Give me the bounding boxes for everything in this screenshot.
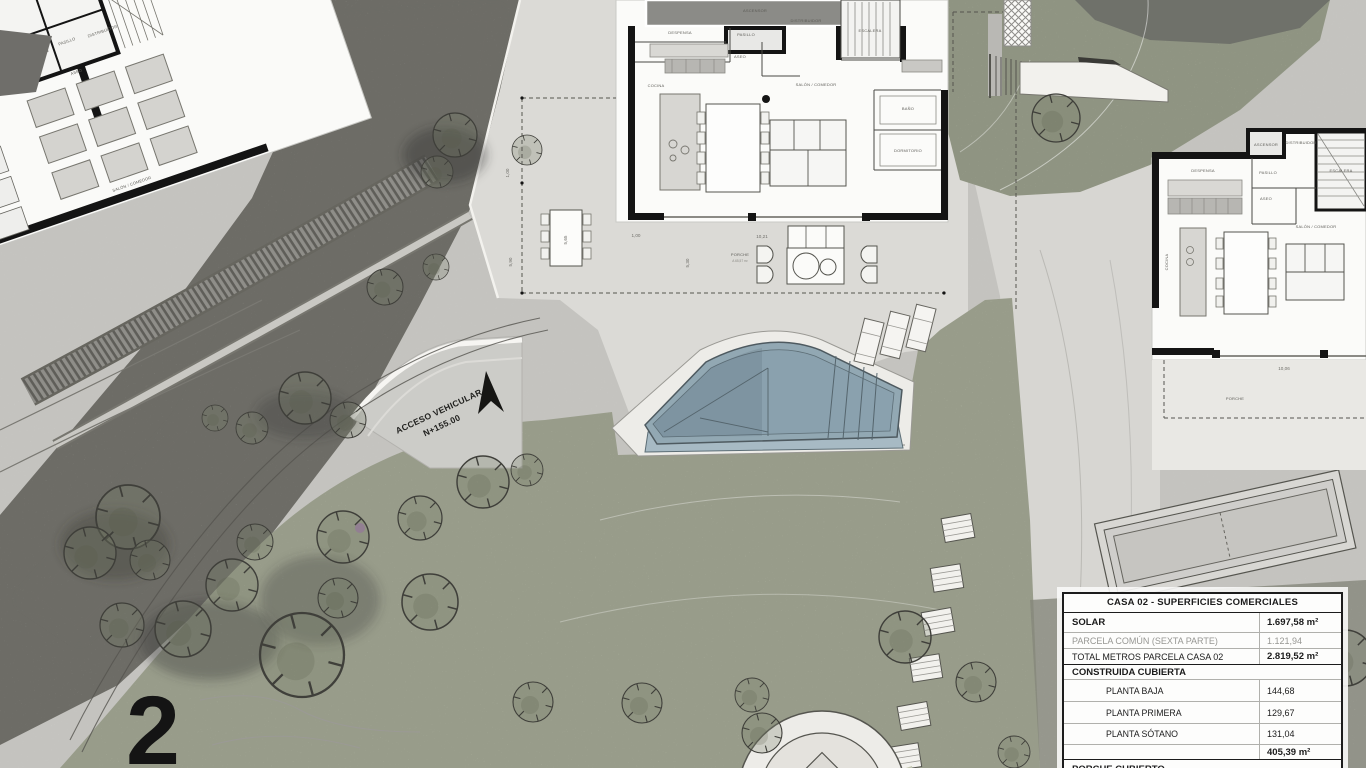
- row-value: [1260, 760, 1341, 768]
- floorplan-house-center: ASCENSOR DISTRIBUIDOR PASILLO ESCALERA D…: [616, 0, 948, 222]
- table-row-planta-primera: PLANTA PRIMERA 129,67: [1064, 702, 1341, 724]
- row-label: CONSTRUIDA CUBIERTA: [1064, 667, 1186, 678]
- column: [762, 95, 770, 103]
- room-label-cocina-right: COCINA: [1164, 253, 1169, 270]
- surface-table: CASA 02 - SUPERFICIES COMERCIALES SOLAR …: [1062, 592, 1343, 768]
- dim-565: 5,65: [563, 235, 568, 244]
- room-label-salon-right: SALÓN / COMEDOR: [1296, 224, 1337, 229]
- room-label-despensa-right: DESPENSA: [1191, 168, 1215, 173]
- kitchen-island-right: [1180, 228, 1206, 316]
- dining-table-inside: [697, 104, 769, 192]
- row-value: 405,39 m²: [1259, 745, 1341, 759]
- surface-table-title: CASA 02 - SUPERFICIES COMERCIALES: [1064, 594, 1341, 613]
- row-label: PLANTA PRIMERA: [1064, 708, 1182, 718]
- room-label-distribuidor-right: DISTRIBUIDOR: [1285, 140, 1316, 145]
- table-row-total-parcela: TOTAL METROS PARCELA CASA 02 2.819,52 m²: [1064, 649, 1341, 665]
- floorplan-house-right: ASCENSOR DISTRIBUIDOR DESPENSA PASILLO A…: [1152, 128, 1366, 470]
- row-label: TOTAL METROS PARCELA CASA 02: [1064, 652, 1223, 662]
- dim-1006: 10,06: [1278, 366, 1290, 371]
- kitchen-island: [660, 94, 700, 190]
- row-label: PLANTA BAJA: [1064, 686, 1164, 696]
- table-row-porche-cubierto: PORCHE CUBIERTO: [1064, 760, 1341, 768]
- room-label-dormitorio-center: DORMITORIO: [894, 148, 922, 153]
- site-plan-sheet: PASILLO ASEO DISTRIBUIDOR ESCALERA SALÓN…: [0, 0, 1366, 768]
- porch-column: [862, 213, 870, 221]
- sofa-right: [1286, 244, 1344, 300]
- sofa-set: [770, 120, 846, 186]
- room-label-porche-right: PORCHE: [1226, 396, 1244, 401]
- row-label: PARCELA COMÚN (SEXTA PARTE): [1064, 636, 1218, 646]
- row-value: [1260, 665, 1341, 679]
- room-label-ascensor-center: ASCENSOR: [743, 8, 767, 13]
- row-label: PLANTA SÓTANO: [1064, 729, 1178, 739]
- room-label-porche-area: A 65,57 m²: [732, 259, 747, 263]
- room-label-ascensor-right: ASCENSOR: [1254, 142, 1278, 147]
- room-label-pasillo-right: PASILLO: [1259, 170, 1277, 175]
- room-label-salon-center: SALÓN / COMEDOR: [796, 82, 837, 87]
- room-label-bano-center: BAÑO: [902, 106, 914, 111]
- row-value: 2.819,52 m²: [1259, 649, 1341, 664]
- row-value: 129,67: [1259, 702, 1341, 723]
- table-row-parcela-comun: PARCELA COMÚN (SEXTA PARTE) 1.121,94: [1064, 633, 1341, 649]
- deck-right: [1152, 360, 1366, 470]
- room-label-aseo-right: ASEO: [1260, 196, 1272, 201]
- row-label: PORCHE CUBIERTO: [1064, 764, 1165, 768]
- room-label-cocina-center: COCINA: [648, 83, 665, 88]
- table-row-construida-cubierta: CONSTRUIDA CUBIERTA: [1064, 665, 1341, 680]
- porch-column: [748, 213, 756, 221]
- room-label-aseo-center: ASEO: [734, 54, 746, 59]
- elevator-shaft: [726, 28, 784, 52]
- room-label-escalera-center: ESCALERA: [859, 28, 882, 33]
- table-row-planta-baja: PLANTA BAJA 144,68: [1064, 680, 1341, 702]
- room-label-escalera-right: ESCALERA: [1330, 168, 1353, 173]
- row-value: 131,04: [1259, 724, 1341, 744]
- row-value: 1.697,58 m²: [1259, 613, 1341, 632]
- room-label-distribuidor-center: DISTRIBUIDOR: [790, 18, 821, 23]
- sheet-number: 2: [126, 676, 180, 768]
- table-row-planta-sotano: PLANTA SÓTANO 131,04: [1064, 724, 1341, 745]
- room-label-despensa-center: DESPENSA: [668, 30, 692, 35]
- porch-column-right: [1212, 350, 1220, 358]
- table-row-solar: SOLAR 1.697,58 m²: [1064, 613, 1341, 633]
- dim-530: 5,30: [685, 258, 690, 267]
- dining-table-right: [1216, 232, 1276, 314]
- dim-100b: 1,00: [632, 233, 641, 238]
- dim-590: 5,90: [508, 257, 513, 266]
- room-label-pasillo-center: PASILLO: [737, 32, 755, 37]
- row-value: 1.121,94: [1259, 633, 1341, 648]
- room-label-porche-center: PORCHE: [731, 252, 749, 257]
- row-value: 144,68: [1259, 680, 1341, 701]
- table-row-subtotal: 405,39 m²: [1064, 745, 1341, 760]
- porch-column-right: [1320, 350, 1328, 358]
- dim-100a: 1,00: [505, 168, 510, 177]
- dim-1021: 10,21: [756, 234, 768, 239]
- row-label: SOLAR: [1064, 617, 1105, 628]
